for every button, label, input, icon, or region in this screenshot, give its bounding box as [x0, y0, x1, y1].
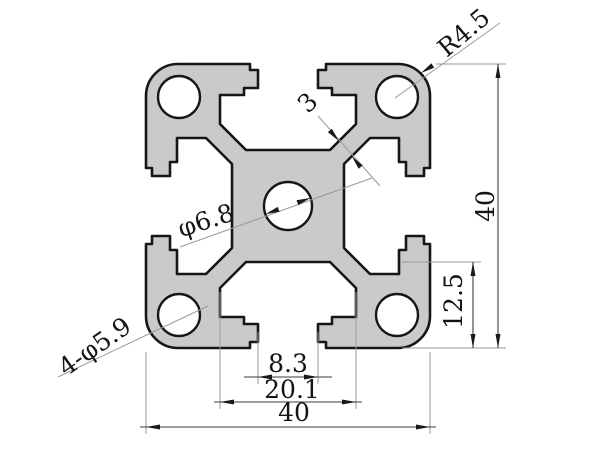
arrowhead	[352, 156, 363, 168]
corner-hole-bottom-left	[158, 294, 200, 336]
arrowhead	[342, 400, 356, 405]
arrowhead	[328, 129, 339, 141]
dim-label-height: 40	[471, 190, 500, 222]
extrusion-profile-drawing: R4.5 40 12.5 8.3 20.1 40 φ6.8 4-φ5.9 3	[0, 0, 600, 450]
arrowhead	[416, 425, 430, 430]
dim-label-width: 40	[278, 398, 310, 427]
arrowhead	[471, 334, 476, 348]
center-hole	[264, 182, 312, 230]
dim-label-corner-radius: R4.5	[432, 3, 496, 63]
dim-label-center-hole: φ6.8	[174, 198, 237, 243]
corner-hole-top-left	[158, 76, 200, 118]
technical-drawing-canvas: R4.5 40 12.5 8.3 20.1 40 φ6.8 4-φ5.9 3	[0, 0, 600, 450]
dim-label-slot-opening: 8.3	[268, 349, 308, 378]
dim-label-slot-floor-offset: 12.5	[439, 273, 468, 329]
arrowhead	[496, 334, 501, 348]
arrowhead	[471, 262, 476, 276]
arrowhead	[146, 425, 160, 430]
arrowhead	[220, 400, 234, 405]
dim-label-web-thickness: 3	[292, 87, 324, 119]
corner-hole-bottom-right	[376, 294, 418, 336]
dim-label-corner-holes: 4-φ5.9	[53, 311, 136, 382]
arrowhead	[496, 64, 501, 78]
